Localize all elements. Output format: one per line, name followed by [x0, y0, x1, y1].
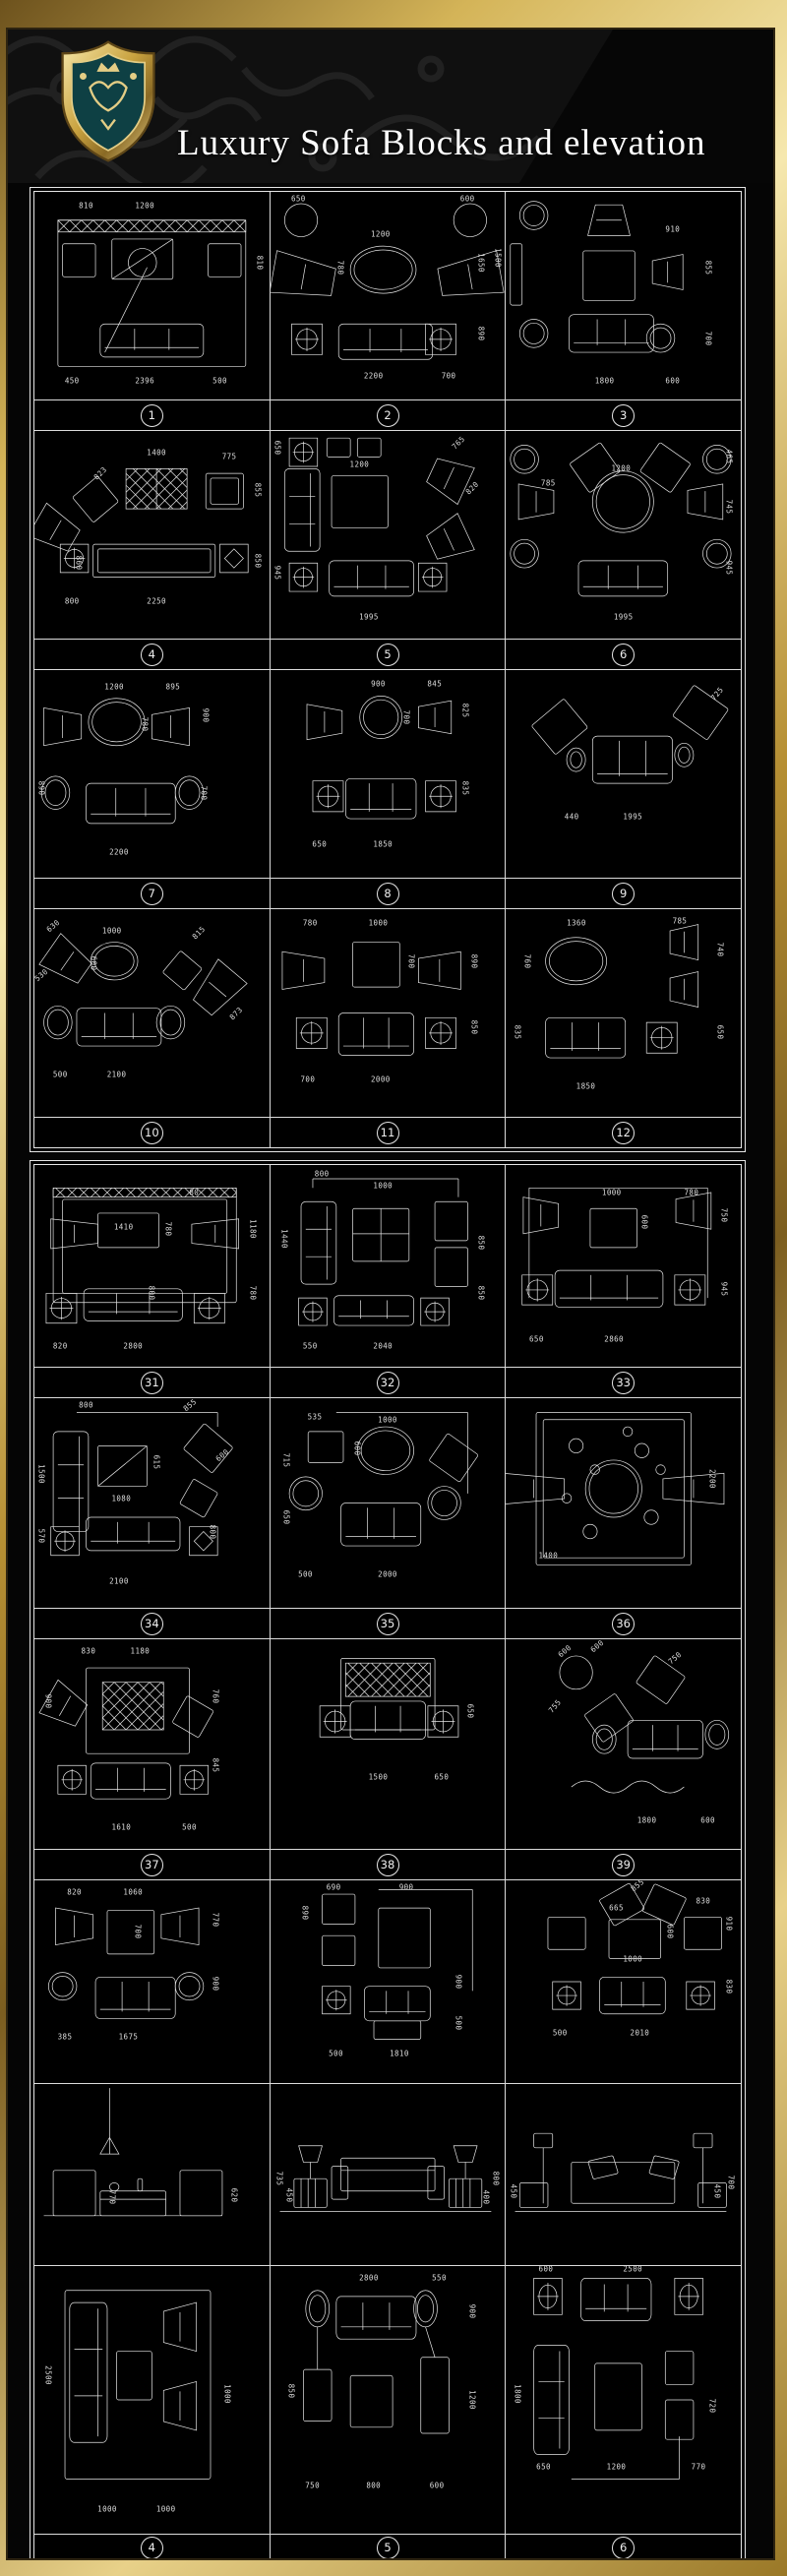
gold-picture-frame: Luxury Sofa Blocks and elevation 8101200… [0, 0, 787, 2576]
dimension-label: 600 [666, 1924, 675, 1938]
number-band-cell: 6 [506, 640, 741, 669]
dimension-label: 2000 [378, 1570, 397, 1579]
cad-cell: 6909008909005005001810 [271, 1880, 507, 2083]
cell-number: 12 [612, 1122, 635, 1144]
dimension-label: 80 [189, 1188, 199, 1196]
dimension-label: 1410 [114, 1222, 134, 1231]
cad-cell: 12008957809008907002200 [34, 670, 271, 878]
dimension-label: 500 [182, 1823, 197, 1832]
dimension-label: 860 [75, 556, 84, 571]
dimension-label: 1000 [222, 2384, 231, 2404]
cell-number: 39 [612, 1854, 635, 1876]
dimension-label: 830 [82, 1647, 96, 1656]
number-band-cell: 31 [34, 1368, 271, 1397]
dimension-label: 450 [65, 376, 80, 385]
cad-sketch [34, 431, 270, 639]
dimension-label: 600 [352, 1441, 361, 1455]
number-band-cell: 4 [34, 2535, 271, 2558]
dimension-label: 1800 [637, 1815, 657, 1824]
dimension-label: 600 [700, 1815, 715, 1824]
number-band-cell: 6 [506, 2535, 741, 2558]
dimension-label: 850 [477, 1236, 486, 1251]
number-band-cell: 35 [271, 1609, 507, 1638]
page-title: Luxury Sofa Blocks and elevation [177, 122, 706, 164]
dimension-label: 1800 [595, 376, 615, 385]
cad-cell: 450450700 [506, 2084, 741, 2265]
cad-grid-area: 8101200810450239650065060012007801650150… [8, 183, 773, 2558]
dimension-label: 700 [442, 372, 456, 381]
dimension-label: 810 [79, 202, 93, 211]
number-band-cell: 11 [271, 1118, 507, 1147]
sofa-plan-block-2: 1410780801180780800820280080010001440850… [30, 1160, 746, 2558]
dimension-label: 1180 [248, 1219, 257, 1239]
dimension-label: 650 [272, 440, 281, 455]
dimension-label: 550 [432, 2274, 447, 2283]
number-band: 373839 [34, 1849, 741, 1879]
dimension-label: 450 [713, 2183, 722, 2198]
dimension-label: 500 [329, 2049, 343, 2057]
cad-cell: 800100014408508505502040 [271, 1165, 507, 1367]
dimension-label: 500 [53, 1070, 68, 1078]
dimension-label: 800 [315, 1170, 330, 1179]
number-band-cell: 9 [506, 879, 741, 908]
dimension-label: 1080 [111, 1494, 131, 1503]
cad-cell: 78010007008908507002000 [271, 909, 507, 1117]
cad-row: 6301000600530815873500210078010007008908… [34, 909, 741, 1117]
dimension-label: 1500 [369, 1773, 389, 1782]
brand-crest-icon [51, 37, 165, 165]
number-band-cell: 39 [506, 1850, 741, 1879]
dimension-label: 385 [58, 2033, 73, 2042]
dimension-label: 800 [148, 1286, 156, 1301]
dimension-label: 1000 [102, 926, 122, 935]
number-band-cell: 5 [271, 640, 507, 669]
dimension-label: 650 [715, 1024, 724, 1039]
dimension-label: 1200 [371, 230, 391, 239]
dimension-label: 855 [253, 483, 262, 498]
cad-cell: 13607857607408356501850 [506, 909, 741, 1117]
dimension-label: 800 [491, 2172, 500, 2186]
dimension-label: 650 [529, 1335, 544, 1344]
dimension-label: 800 [366, 2481, 381, 2489]
dimension-label: 2800 [359, 2274, 379, 2283]
cad-cell: 85566583060091010008305002010 [506, 1880, 741, 2083]
dimension-label: 2250 [147, 596, 166, 605]
cell-number: 4 [141, 644, 163, 666]
dimension-label: 690 [327, 1883, 341, 1892]
cad-cell: 6506001200780165015008902200700 [271, 192, 507, 399]
dimension-label: 2040 [373, 1342, 393, 1351]
dimension-label: 1500 [37, 1465, 46, 1485]
cad-cell: 9008457008258356501850 [271, 670, 507, 878]
dimension-label: 650 [282, 1510, 291, 1525]
cell-number: 3 [612, 404, 635, 427]
cad-sketch [34, 1880, 270, 2083]
cad-cell: 65012007658209451995 [271, 431, 507, 639]
dimension-label: 1000 [602, 1188, 622, 1196]
dimension-label: 820 [67, 1887, 82, 1896]
dimension-label: 1650 [477, 253, 486, 273]
cad-sketch [506, 192, 741, 399]
dimension-label: 650 [291, 195, 306, 204]
dimension-label: 2200 [708, 1469, 717, 1489]
cad-sketch [34, 192, 270, 399]
cad-cell: 6501500650 [271, 1639, 507, 1849]
dimension-label: 650 [435, 1773, 450, 1782]
cell-number: 9 [612, 883, 635, 905]
cad-sketch [271, 192, 506, 399]
cad-cell: 12007854657459451995 [506, 431, 741, 639]
cad-cell: 600250018007206501200770 [506, 2266, 741, 2534]
cad-row: 8201060700770900385167569090089090050050… [34, 1880, 741, 2083]
dimension-label: 650 [312, 840, 327, 849]
dimension-label: 910 [725, 1917, 734, 1932]
cell-number: 5 [377, 2537, 399, 2559]
dimension-label: 900 [211, 1977, 219, 1992]
dimension-label: 945 [272, 565, 281, 580]
cad-cell: 82010607007709003851675 [34, 1880, 271, 2083]
dimension-label: 780 [685, 1188, 699, 1196]
cad-sketch [34, 2084, 270, 2265]
dimension-label: 1995 [614, 613, 634, 622]
dimension-label: 845 [427, 680, 442, 689]
cell-number: 6 [612, 644, 635, 666]
dimension-label: 1060 [123, 1887, 143, 1896]
dimension-label: 500 [212, 376, 227, 385]
dimension-label: 720 [708, 2399, 717, 2414]
dimension-label: 700 [199, 785, 208, 800]
cad-cell: 10007806007509456502860 [506, 1165, 741, 1367]
dimension-label: 800 [209, 1524, 217, 1539]
header: Luxury Sofa Blocks and elevation [8, 30, 773, 183]
dimension-label: 850 [287, 2383, 296, 2398]
cad-cell: 7254401995 [506, 670, 741, 878]
cell-number: 10 [141, 1122, 163, 1144]
dimension-label: 760 [522, 953, 531, 968]
dimension-label: 800 [79, 1401, 93, 1410]
dimension-label: 830 [696, 1897, 710, 1906]
dimension-label: 1200 [467, 2390, 476, 2410]
dimension-label: 1610 [111, 1823, 131, 1832]
cad-row-group: 1200895780900890700220090084570082583565… [34, 670, 741, 909]
dimension-label: 650 [536, 2463, 551, 2472]
dimension-label: 785 [541, 478, 556, 487]
dimension-label: 780 [164, 1222, 173, 1237]
dimension-label: 890 [301, 1905, 310, 1920]
dimension-label: 715 [282, 1453, 291, 1468]
dimension-label: 440 [565, 812, 579, 821]
sofa-plan-block-1: 8101200810450239650065060012007801650150… [30, 187, 746, 1152]
cad-cell: 620770 [34, 2084, 271, 2265]
number-band-cell: 10 [34, 1118, 271, 1147]
number-band: 456 [34, 639, 741, 669]
dimension-label: 780 [141, 717, 150, 732]
dimension-label: 1360 [567, 919, 586, 928]
dimension-label: 900 [371, 680, 386, 689]
cad-sketch [34, 1639, 270, 1849]
sofa-plan-block-2-inner-border: 1410780801180780800820280080010001440850… [33, 1164, 742, 2558]
dimension-label: 835 [514, 1024, 522, 1039]
cad-cell: 83011809007608451610500 [34, 1639, 271, 1849]
dimension-label: 780 [336, 260, 345, 275]
cad-sketch [34, 2266, 270, 2534]
dimension-label: 1200 [611, 464, 631, 473]
dimension-label: 2010 [631, 2028, 650, 2037]
number-band-cell: 3 [506, 400, 741, 430]
dimension-label: 900 [202, 707, 211, 722]
cell-number: 5 [377, 644, 399, 666]
dimension-label: 620 [229, 2188, 238, 2203]
cad-row-group: 8301180900760845161050065015006506006007… [34, 1639, 741, 1880]
dimension-label: 2860 [604, 1335, 624, 1344]
dimension-label: 1180 [131, 1647, 151, 1656]
dimension-label: 855 [703, 260, 712, 275]
cad-row-group: 8101200810450239650065060012007801650150… [34, 192, 741, 431]
cad-sketch [271, 431, 506, 639]
dimension-label: 810 [256, 256, 265, 271]
dimension-label: 800 [65, 596, 80, 605]
dimension-label: 700 [134, 1924, 143, 1938]
dimension-label: 2500 [623, 2266, 642, 2274]
cad-row-group: 620770735450400800450450700 [34, 2084, 741, 2266]
cad-row: 1410780801180780800820280080010001440850… [34, 1165, 741, 1367]
dimension-label: 600 [539, 2266, 554, 2274]
cad-row-group: 6301000600530815873500210078010007008908… [34, 909, 741, 1147]
cad-cell: 28005509001200850750800600 [271, 2266, 507, 2534]
number-band-cell: 5 [271, 2535, 507, 2558]
cad-sketch [506, 2084, 741, 2265]
dimension-label: 1500 [494, 248, 503, 268]
dimension-label: 760 [211, 1689, 219, 1704]
cell-number: 1 [141, 404, 163, 427]
dimension-label: 780 [303, 919, 318, 928]
dimension-label: 700 [727, 2176, 736, 2190]
dimension-label: 1000 [623, 1954, 642, 1963]
dimension-label: 945 [725, 561, 734, 576]
dimension-label: 600 [640, 1215, 649, 1230]
cad-sketch [271, 909, 506, 1117]
cell-number: 33 [612, 1372, 635, 1394]
cad-sketch [271, 1639, 506, 1849]
dimension-label: 900 [399, 1883, 414, 1892]
dimension-label: 465 [725, 450, 734, 464]
dimension-label: 500 [298, 1570, 313, 1579]
number-band-cell: 4 [34, 640, 271, 669]
dimension-label: 1000 [97, 2505, 117, 2514]
cad-sketch [34, 670, 270, 878]
number-band: 123 [34, 399, 741, 430]
cad-row-group: 1400775823855860850800225065012007658209… [34, 431, 741, 670]
dimension-label: 830 [725, 1979, 734, 1993]
dimension-label: 600 [665, 376, 680, 385]
dimension-label: 615 [152, 1455, 161, 1470]
cell-number: 35 [377, 1613, 399, 1635]
dimension-label: 770 [107, 2190, 116, 2205]
dimension-label: 550 [303, 1342, 318, 1351]
number-band-cell: 37 [34, 1850, 271, 1879]
cad-row: 8008551500108061557060080021005351000600… [34, 1398, 741, 1608]
dimension-label: 665 [609, 1904, 624, 1913]
cad-cell: 14107808011807808008202800 [34, 1165, 271, 1367]
dimension-label: 895 [165, 682, 180, 691]
cad-row: 1400775823855860850800225065012007658209… [34, 431, 741, 639]
dimension-label: 740 [715, 942, 724, 956]
dimension-label: 900 [44, 1694, 53, 1709]
dimension-label: 700 [300, 1074, 315, 1083]
dimension-label: 2000 [371, 1074, 391, 1083]
page-background: Luxury Sofa Blocks and elevation 8101200… [8, 30, 773, 2558]
dimension-label: 820 [53, 1342, 68, 1351]
cad-row-group: 8201060700770900385167569090089090050050… [34, 1880, 741, 2084]
cell-number: 7 [141, 883, 163, 905]
dimension-label: 1000 [373, 1181, 393, 1190]
dimension-label: 1200 [350, 460, 370, 468]
cell-number: 36 [612, 1613, 635, 1635]
dimension-label: 1675 [119, 2033, 139, 2042]
dimension-label: 2100 [109, 1577, 129, 1586]
dimension-label: 750 [305, 2481, 320, 2489]
cad-row-group: 8008551500108061557060080021005351000600… [34, 1398, 741, 1639]
dimension-label: 850 [470, 1020, 479, 1035]
cell-number: 32 [377, 1372, 399, 1394]
dimension-label: 450 [509, 2183, 517, 2198]
number-band-cell: 36 [506, 1609, 741, 1638]
dimension-label: 780 [248, 1286, 257, 1301]
dimension-label: 890 [37, 781, 46, 796]
dimension-label: 945 [720, 1281, 729, 1296]
number-band-cell: 32 [271, 1368, 507, 1397]
cad-row: 8301180900760845161050065015006506006007… [34, 1639, 741, 1849]
number-band-cell: 1 [34, 400, 271, 430]
dimension-label: 2200 [364, 372, 384, 381]
cell-number: 31 [141, 1372, 163, 1394]
dimension-label: 400 [482, 2190, 491, 2205]
cad-cell: 63010006005308158735002100 [34, 909, 271, 1117]
dimension-label: 700 [402, 710, 411, 725]
number-band-cell: 8 [271, 879, 507, 908]
cell-number: 11 [377, 1122, 399, 1144]
cad-sketch [506, 909, 741, 1117]
dimension-label: 1200 [104, 682, 124, 691]
number-band-cell: 12 [506, 1118, 741, 1147]
number-band-cell: 34 [34, 1609, 271, 1638]
cell-number: 37 [141, 1854, 163, 1876]
dimension-label: 450 [284, 2188, 293, 2203]
number-band: 101112 [34, 1117, 741, 1147]
dimension-label: 745 [725, 499, 734, 514]
dimension-label: 700 [703, 331, 712, 345]
dimension-label: 600 [89, 956, 97, 971]
dimension-label: 2800 [123, 1342, 143, 1351]
dimension-label: 600 [430, 2481, 445, 2489]
dimension-label: 1000 [378, 1415, 397, 1424]
cad-sketch [506, 2266, 741, 2534]
dimension-label: 1995 [623, 812, 642, 821]
cell-number: 38 [377, 1854, 399, 1876]
cad-row: 2500100010001000280055090012008507508006… [34, 2266, 741, 2534]
dimension-label: 2100 [107, 1070, 127, 1078]
number-band-cell: 33 [506, 1368, 741, 1397]
dimension-label: 850 [477, 1286, 486, 1301]
cad-cell: 9108557001800600 [506, 192, 741, 399]
dimension-label: 835 [460, 781, 469, 796]
dimension-label: 735 [275, 2172, 284, 2186]
dimension-label: 1400 [147, 448, 166, 457]
number-band-cell: 7 [34, 879, 271, 908]
cad-cell: 14007758238558608508002250 [34, 431, 271, 639]
dimension-label: 1200 [135, 202, 154, 211]
cad-cell: 53510006007156505002000 [271, 1398, 507, 1608]
cad-sketch [34, 1165, 270, 1367]
cad-row: 620770735450400800450450700 [34, 2084, 741, 2265]
dimension-label: 910 [665, 225, 680, 234]
dimension-label: 650 [465, 1703, 474, 1718]
dimension-label: 1000 [369, 919, 389, 928]
dimension-label: 785 [673, 916, 688, 925]
cad-sketch [506, 431, 741, 639]
cad-cell: 6006007507551800600 [506, 1639, 741, 1849]
dimension-label: 890 [470, 953, 479, 968]
cad-row: 1200895780900890700220090084570082583565… [34, 670, 741, 878]
number-band: 343536 [34, 1608, 741, 1638]
cad-sketch [34, 1398, 270, 1608]
dimension-label: 770 [211, 1912, 219, 1927]
dimension-label: 890 [477, 326, 486, 340]
cad-sketch [271, 2084, 506, 2265]
dimension-label: 500 [454, 2016, 462, 2031]
dimension-label: 500 [553, 2028, 568, 2037]
dimension-label: 535 [308, 1413, 323, 1422]
cad-sketch [506, 1398, 741, 1608]
dimension-label: 770 [692, 2463, 706, 2472]
cad-cell: 735450400800 [271, 2084, 507, 2265]
dimension-label: 2200 [109, 847, 129, 856]
cad-cell: 2500100010001000 [34, 2266, 271, 2534]
dimension-label: 1850 [576, 1081, 596, 1090]
dimension-label: 2500 [44, 2365, 53, 2385]
cad-cell: 22001400 [506, 1398, 741, 1608]
dimension-label: 1850 [373, 840, 393, 849]
dimension-label: 825 [460, 703, 469, 717]
dimension-label: 900 [467, 2304, 476, 2319]
number-band: 313233 [34, 1367, 741, 1397]
cad-row-group: 1410780801180780800820280080010001440850… [34, 1165, 741, 1398]
dimension-label: 1440 [279, 1229, 288, 1249]
dimension-label: 850 [253, 554, 262, 569]
cad-sketch [506, 670, 741, 878]
dimension-label: 700 [406, 953, 415, 968]
dimension-label: 2396 [135, 376, 154, 385]
number-band: 456 [34, 2534, 741, 2558]
cad-sketch [271, 1165, 506, 1367]
cell-number: 8 [377, 883, 399, 905]
dimension-label: 775 [222, 453, 237, 461]
dimension-label: 1400 [538, 1551, 558, 1560]
dimension-label: 1810 [390, 2049, 409, 2057]
dimension-label: 900 [454, 1975, 462, 1990]
dimension-label: 845 [211, 1758, 219, 1773]
cell-number: 4 [141, 2537, 163, 2559]
sofa-plan-block-1-inner-border: 8101200810450239650065060012007801650150… [33, 191, 742, 1148]
dimension-label: 600 [460, 195, 475, 204]
number-band-cell: 38 [271, 1850, 507, 1879]
dimension-label: 1000 [156, 2505, 176, 2514]
cad-cell: 800855150010806155706008002100 [34, 1398, 271, 1608]
dimension-label: 570 [37, 1529, 46, 1544]
cad-row: 8101200810450239650065060012007801650150… [34, 192, 741, 399]
dimension-label: 1995 [359, 613, 379, 622]
cell-number: 6 [612, 2537, 635, 2559]
